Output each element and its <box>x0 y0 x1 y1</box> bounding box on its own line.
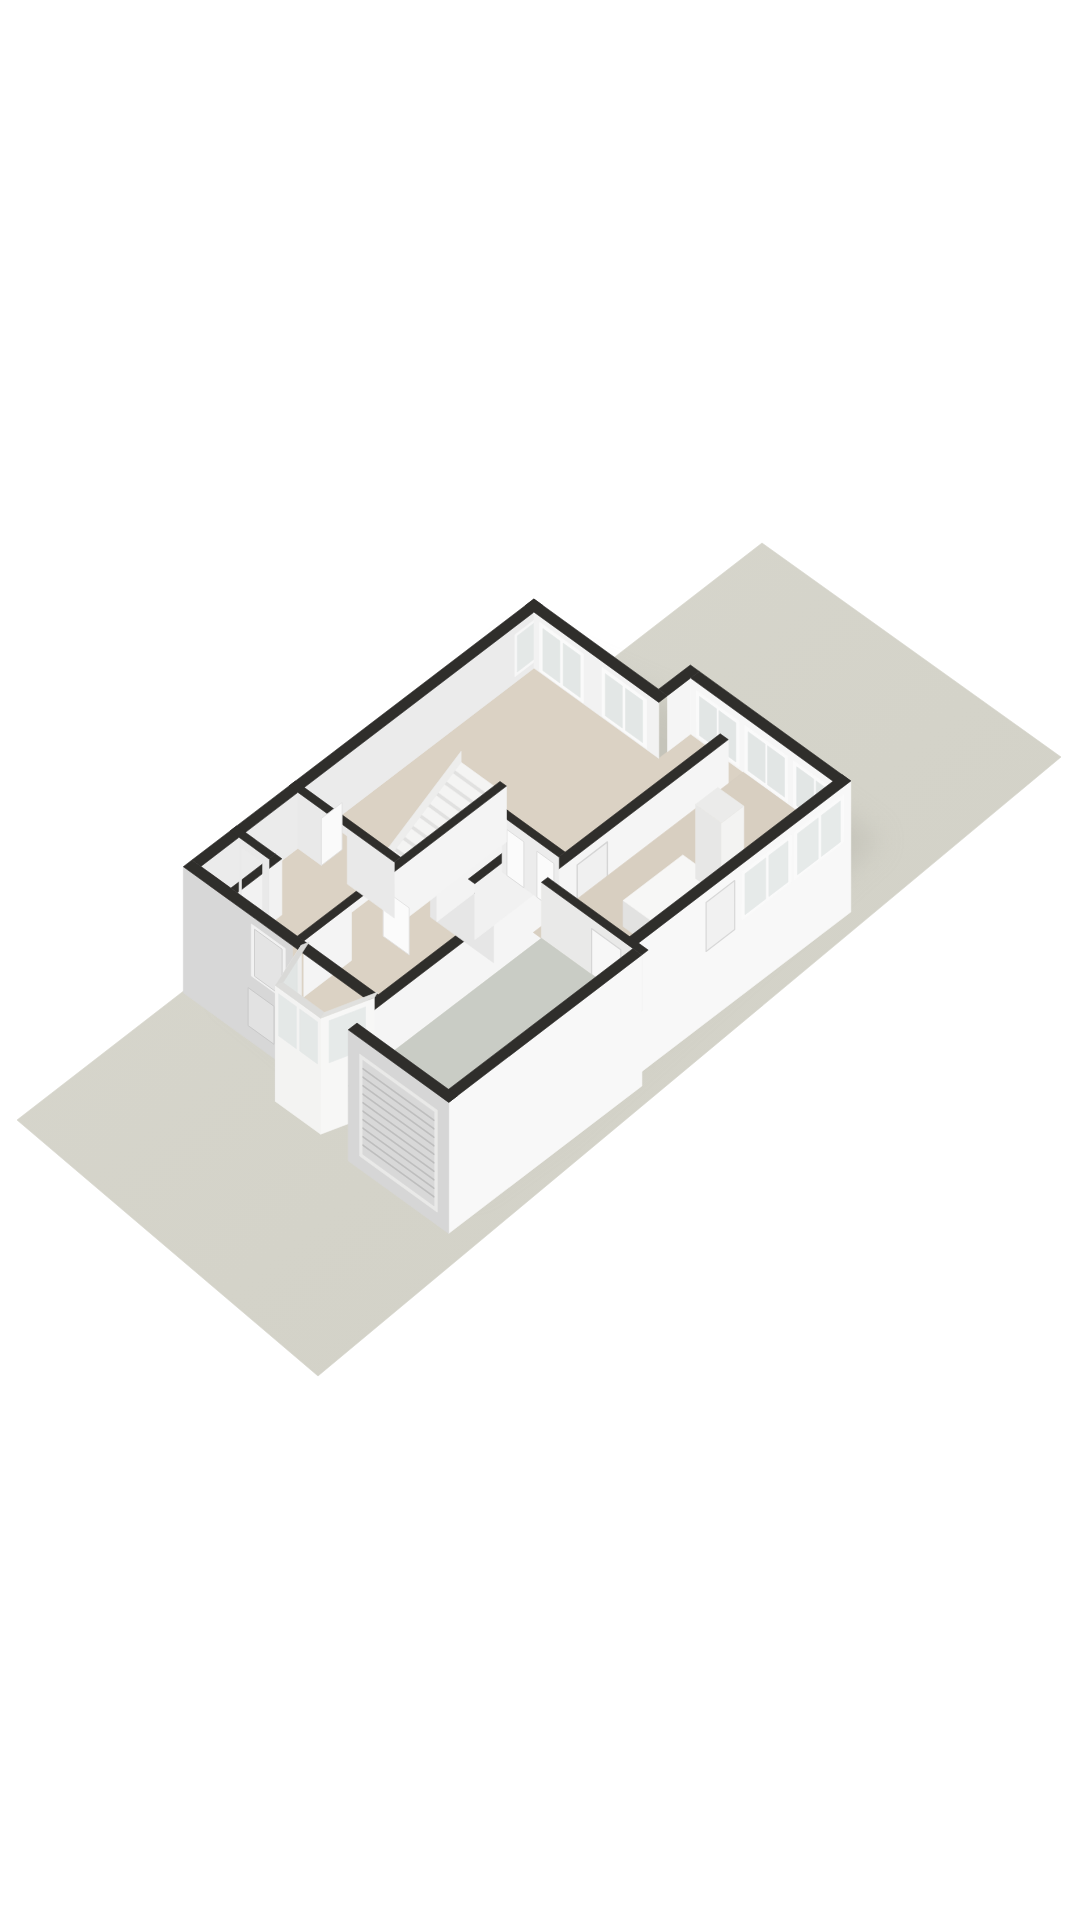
meter-closet-ne-face-b <box>263 854 269 915</box>
meter-closet-ne-face-a <box>239 837 241 895</box>
floorplan-stage <box>0 0 1080 1920</box>
floorplan-3d-render <box>0 0 1080 1920</box>
